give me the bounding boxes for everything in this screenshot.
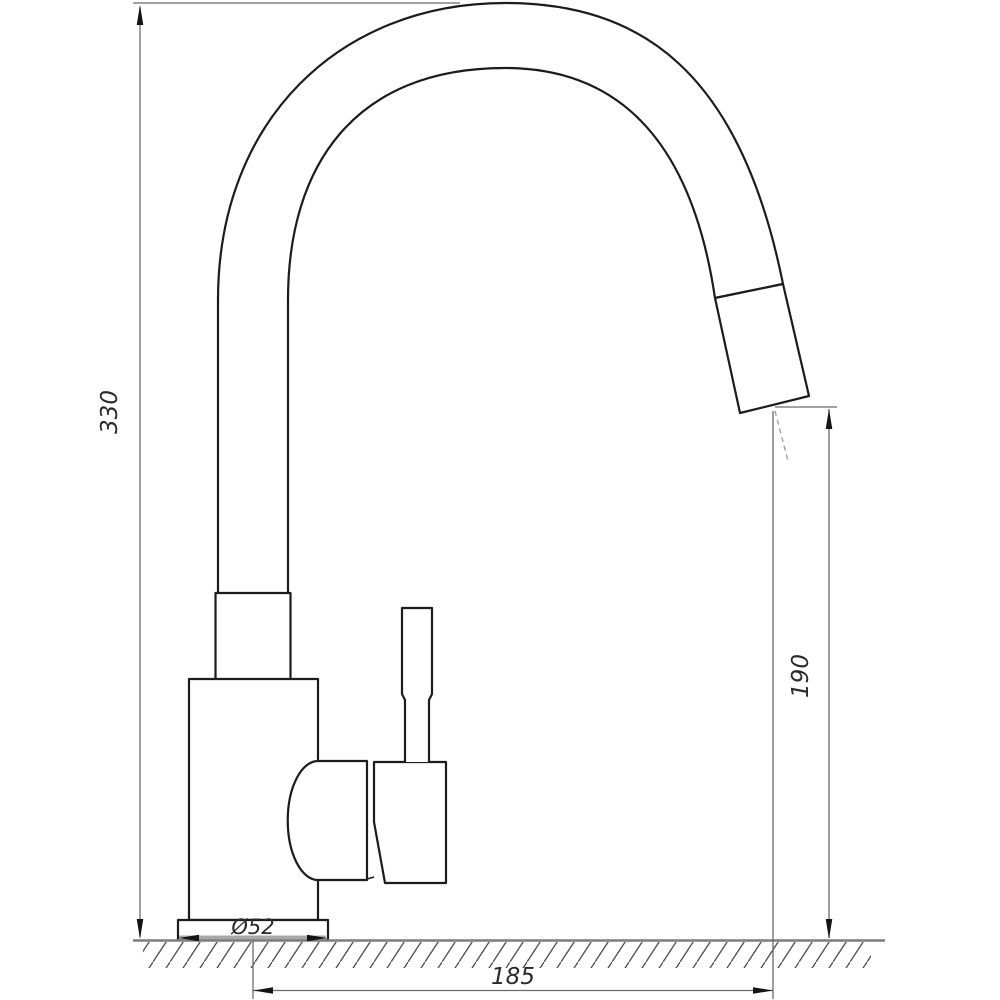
arrowhead-left	[253, 987, 273, 994]
riser-collar	[216, 593, 291, 681]
dimension-outlet-height: 190	[775, 407, 837, 939]
dimension-label-330: 330	[97, 390, 123, 434]
arrowhead-up	[826, 409, 833, 429]
dimension-label-diameter: Ø52	[230, 915, 274, 939]
faucet-outline	[178, 3, 809, 940]
dimension-label-185: 185	[491, 964, 535, 990]
spray-head	[715, 284, 809, 413]
technical-drawing: 330 190 185	[0, 0, 1000, 1000]
arrowhead-down	[137, 919, 144, 939]
arrowhead-up	[137, 5, 144, 25]
arrowhead-down	[826, 919, 833, 939]
handle-lever-rod	[402, 608, 432, 762]
dimension-label-190: 190	[788, 654, 814, 698]
handle-cap-dome	[288, 761, 367, 880]
faucet-dimension-drawing: 330 190 185	[0, 0, 1000, 1000]
stream-direction-dashed-line	[775, 411, 788, 461]
arrowhead-right	[753, 987, 773, 994]
handle-sleeve	[374, 762, 446, 883]
dimension-spout-reach: 185	[253, 411, 773, 999]
gooseneck-tube	[218, 3, 783, 600]
